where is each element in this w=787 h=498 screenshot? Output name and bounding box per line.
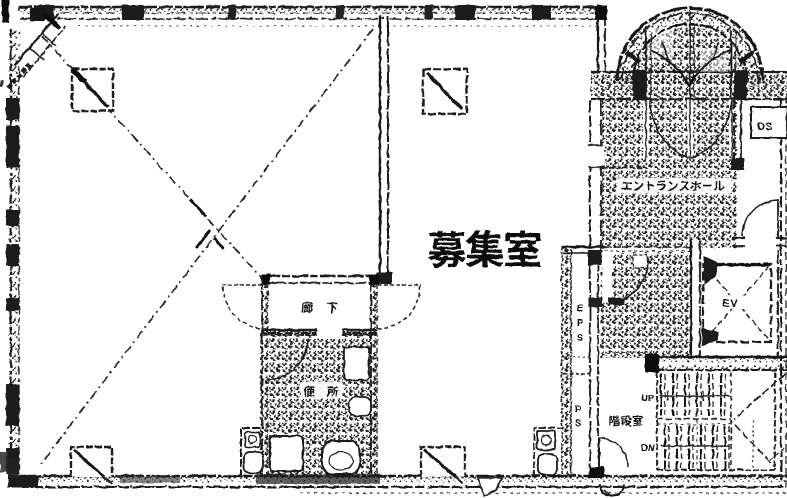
svg-text:P: P xyxy=(577,318,584,329)
svg-text:S: S xyxy=(577,333,583,344)
svg-text:S: S xyxy=(575,418,581,429)
svg-text:DN: DN xyxy=(641,443,655,454)
svg-text:EV: EV xyxy=(722,298,739,310)
svg-text:E: E xyxy=(577,303,583,314)
svg-text:DS: DS xyxy=(757,121,773,133)
svg-text:UP: UP xyxy=(641,393,655,404)
svg-text:P: P xyxy=(575,404,582,415)
